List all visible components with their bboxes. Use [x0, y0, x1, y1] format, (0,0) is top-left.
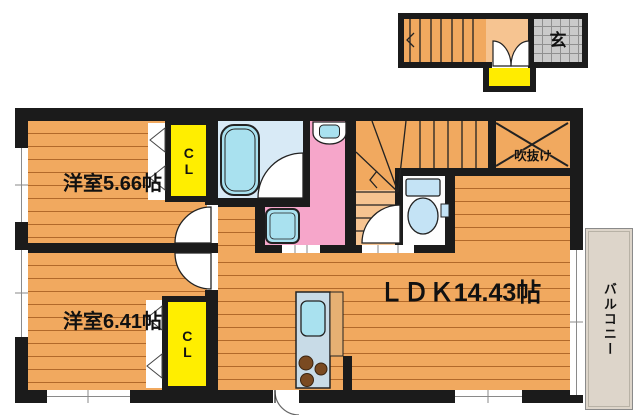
entrance-door-gap [492, 62, 528, 68]
ldk-label: ＬＤＫ14.43帖 [355, 280, 565, 306]
wall-void-bottom [488, 168, 570, 176]
floor-plan: バルコニー CL CL 玄 [0, 0, 640, 415]
wall-washroom-stairs [345, 121, 356, 253]
balcony: バルコニー [585, 228, 633, 410]
washroom-floor [310, 121, 345, 245]
entrance-stairs-floor [404, 19, 486, 62]
void-label: 吹抜け [496, 150, 570, 163]
bathroom-floor [218, 121, 303, 198]
wall-right-lower [570, 395, 583, 403]
wall-laundry-divider [255, 207, 265, 253]
wall-kitchen-stub [343, 356, 352, 390]
balcony-sliding-door [570, 250, 583, 395]
entrance-tile: 玄 [534, 19, 582, 62]
wall-toilet-top [395, 168, 488, 176]
washroom-opening [282, 245, 320, 253]
entrance-hall-floor [486, 19, 528, 62]
stairhall-opening [362, 245, 414, 253]
window-ldk-bottom [455, 390, 522, 403]
closet1-label: CL [181, 145, 196, 177]
balcony-label: バルコニー [602, 282, 616, 357]
balcony-inner-border: バルコニー [588, 231, 630, 407]
wall-top [15, 108, 583, 121]
wall-bedroom-divider [15, 243, 218, 253]
window-bedroom2-bottom [47, 390, 130, 403]
laundry-nook-floor [265, 207, 310, 245]
wall-bath-washroom [303, 121, 310, 198]
entrance-wall-right [582, 13, 588, 68]
window-bedroom1-left [15, 148, 28, 222]
bedroom2-label: 洋室6.41帖 [30, 312, 195, 333]
entrance-wall-top [398, 13, 588, 19]
toilet-room-floor [403, 176, 445, 245]
bedroom1-label: 洋室5.66帖 [30, 174, 195, 195]
wall-toilet-right [445, 168, 455, 253]
corridor-floor [218, 207, 255, 250]
entrance-label: 玄 [550, 32, 567, 50]
ldk-main-floor [218, 250, 570, 390]
exterior-door-gap [273, 390, 299, 403]
entrance-wall-left [398, 13, 404, 68]
wall-right-upper [570, 108, 583, 250]
window-bedroom2-left [15, 250, 28, 337]
wall-toilet-left [395, 168, 403, 245]
porch [489, 68, 530, 86]
wall-void-left [488, 121, 496, 168]
wall-below-bathroom [218, 198, 310, 207]
ldk-upper-floor [455, 176, 570, 250]
